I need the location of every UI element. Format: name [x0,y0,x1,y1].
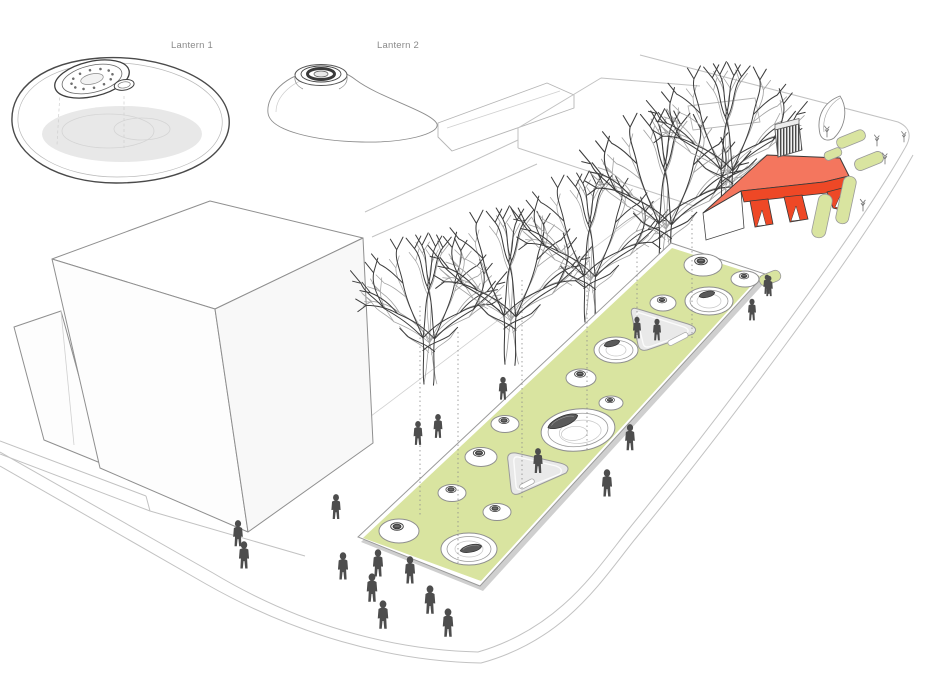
planters [758,128,885,287]
lantern-dome [465,448,497,467]
lantern1-drawing [12,53,229,183]
axonometric-drawing [0,0,947,685]
lantern1-oculus [51,53,135,106]
lantern1-label: Lantern 1 [171,40,213,51]
lantern-dome [684,254,722,276]
street-tree [351,233,509,394]
lantern-dome [650,295,676,311]
lantern-dome [483,504,511,521]
lantern-dome [379,519,419,543]
lantern-dome [566,369,596,387]
lantern-dome [491,416,519,433]
lantern-bowl [441,533,497,565]
lantern2-label: Lantern 2 [377,40,419,51]
lantern-dish [594,337,638,363]
lantern-dome [599,396,623,410]
roof-vent [775,119,802,158]
lantern-dome [731,271,759,287]
site-diagram: Lantern 1 Lantern 2 [0,0,947,685]
cube-building [52,201,373,532]
lantern2-drawing [268,65,437,143]
lantern-dome [438,485,466,502]
